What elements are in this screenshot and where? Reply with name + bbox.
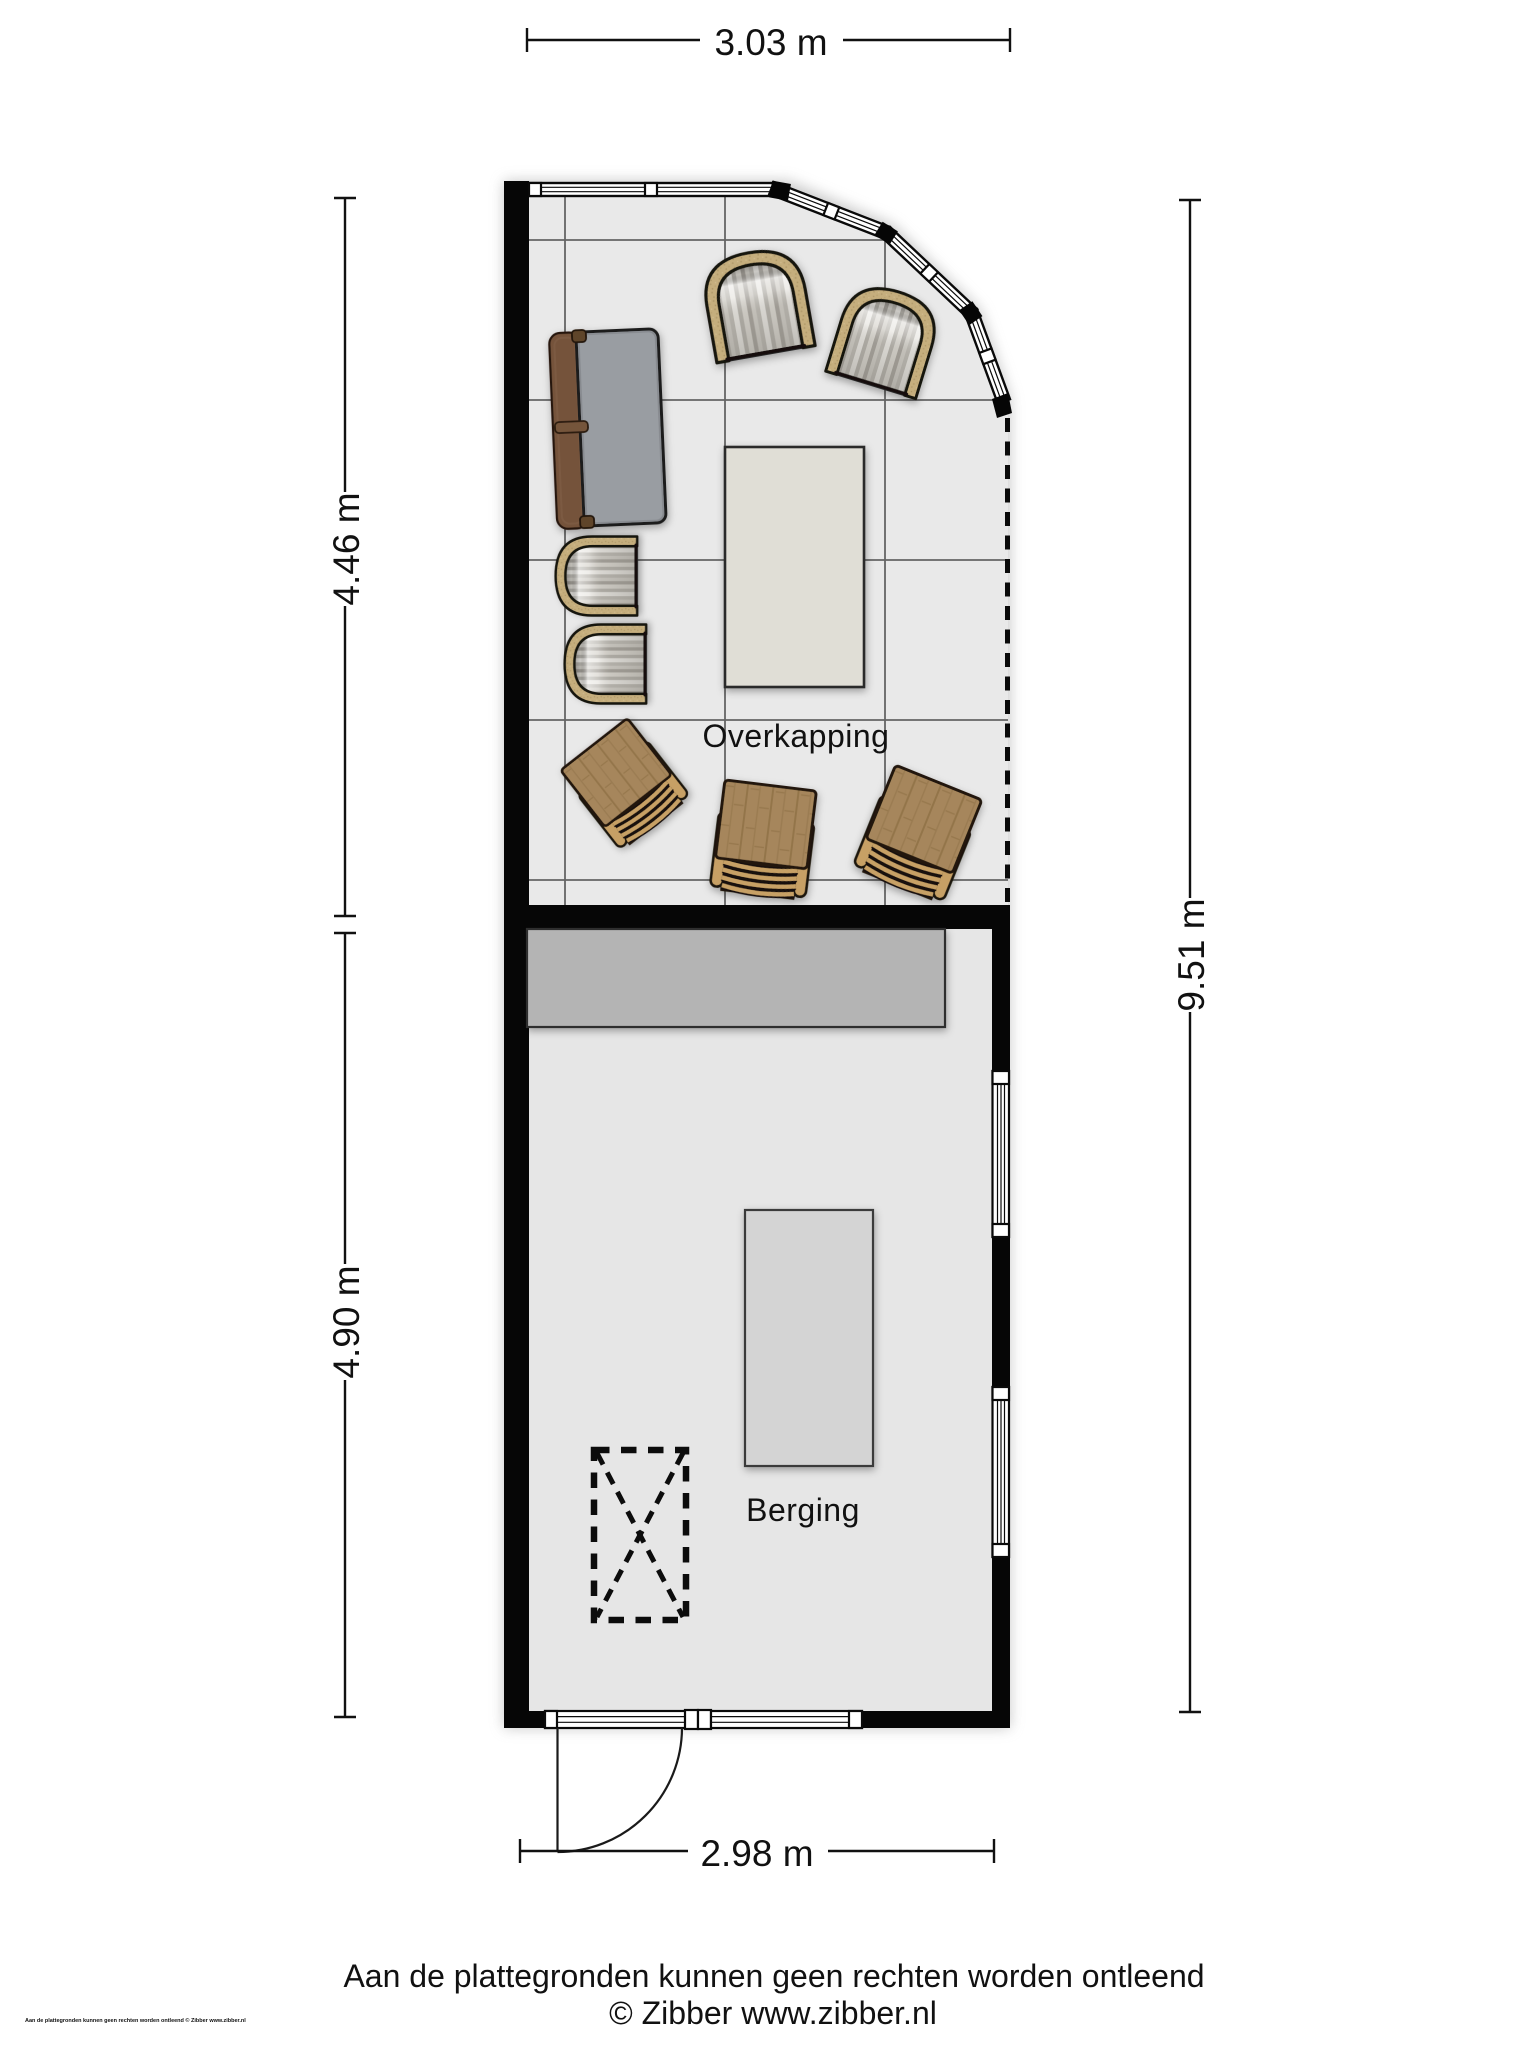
svg-text:3.03 m: 3.03 m [714, 22, 827, 63]
svg-text:© Zibber www.zibber.nl: © Zibber www.zibber.nl [609, 1995, 937, 2031]
svg-text:Overkapping: Overkapping [703, 718, 890, 754]
svg-text:2.98 m: 2.98 m [700, 1833, 813, 1874]
svg-text:9.51 m: 9.51 m [1171, 898, 1212, 1011]
svg-text:4.46 m: 4.46 m [326, 492, 367, 605]
svg-text:Berging: Berging [746, 1492, 860, 1528]
svg-text:4.90 m: 4.90 m [326, 1265, 367, 1378]
svg-text:Aan de plattegronden kunnen ge: Aan de plattegronden kunnen geen rechten… [25, 2017, 246, 2024]
svg-text:Aan de plattegronden kunnen ge: Aan de plattegronden kunnen geen rechten… [343, 1958, 1204, 1994]
